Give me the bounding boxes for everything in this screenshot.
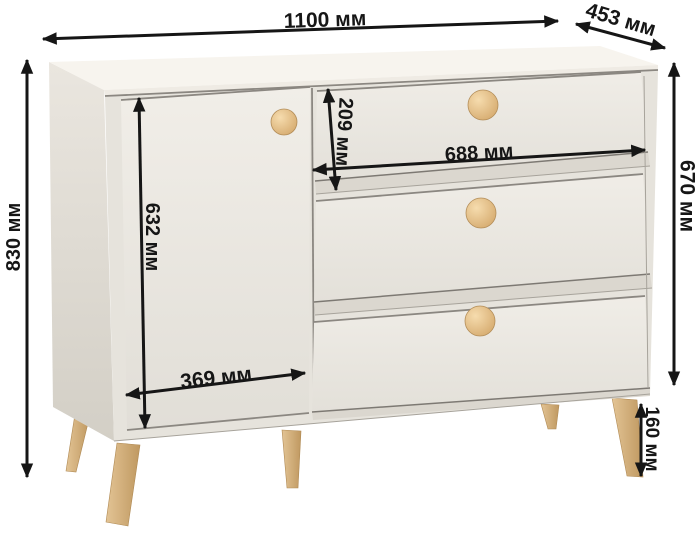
diagram-canvas: 1100 мм 453 мм 830 мм 632 мм 209 мм 688 … (0, 0, 700, 540)
dim-label-drawer-width: 688 мм (444, 140, 514, 166)
dim-label-door-height: 632 мм (141, 203, 163, 272)
drawer-2-knob (466, 198, 496, 228)
drawer-1-knob (468, 90, 498, 120)
leg-front-left (106, 443, 140, 526)
furniture-dimension-diagram: 1100 мм 453 мм 830 мм 632 мм 209 мм 688 … (0, 0, 700, 540)
leg-front-center (282, 430, 301, 488)
dim-label-total-width: 1100 мм (283, 7, 366, 33)
dim-label-body-height: 670 мм (675, 160, 698, 232)
leg-front-right (612, 398, 643, 477)
dim-label-total-height: 830 мм (3, 203, 25, 272)
dim-label-top-drawer-height: 209 мм (331, 97, 357, 167)
leg-back-right (541, 404, 559, 429)
cabinet-left-side-panel (49, 62, 114, 441)
dim-label-leg-height: 160 мм (641, 406, 662, 471)
door-knob (271, 109, 297, 135)
drawer-3-knob (465, 306, 495, 336)
